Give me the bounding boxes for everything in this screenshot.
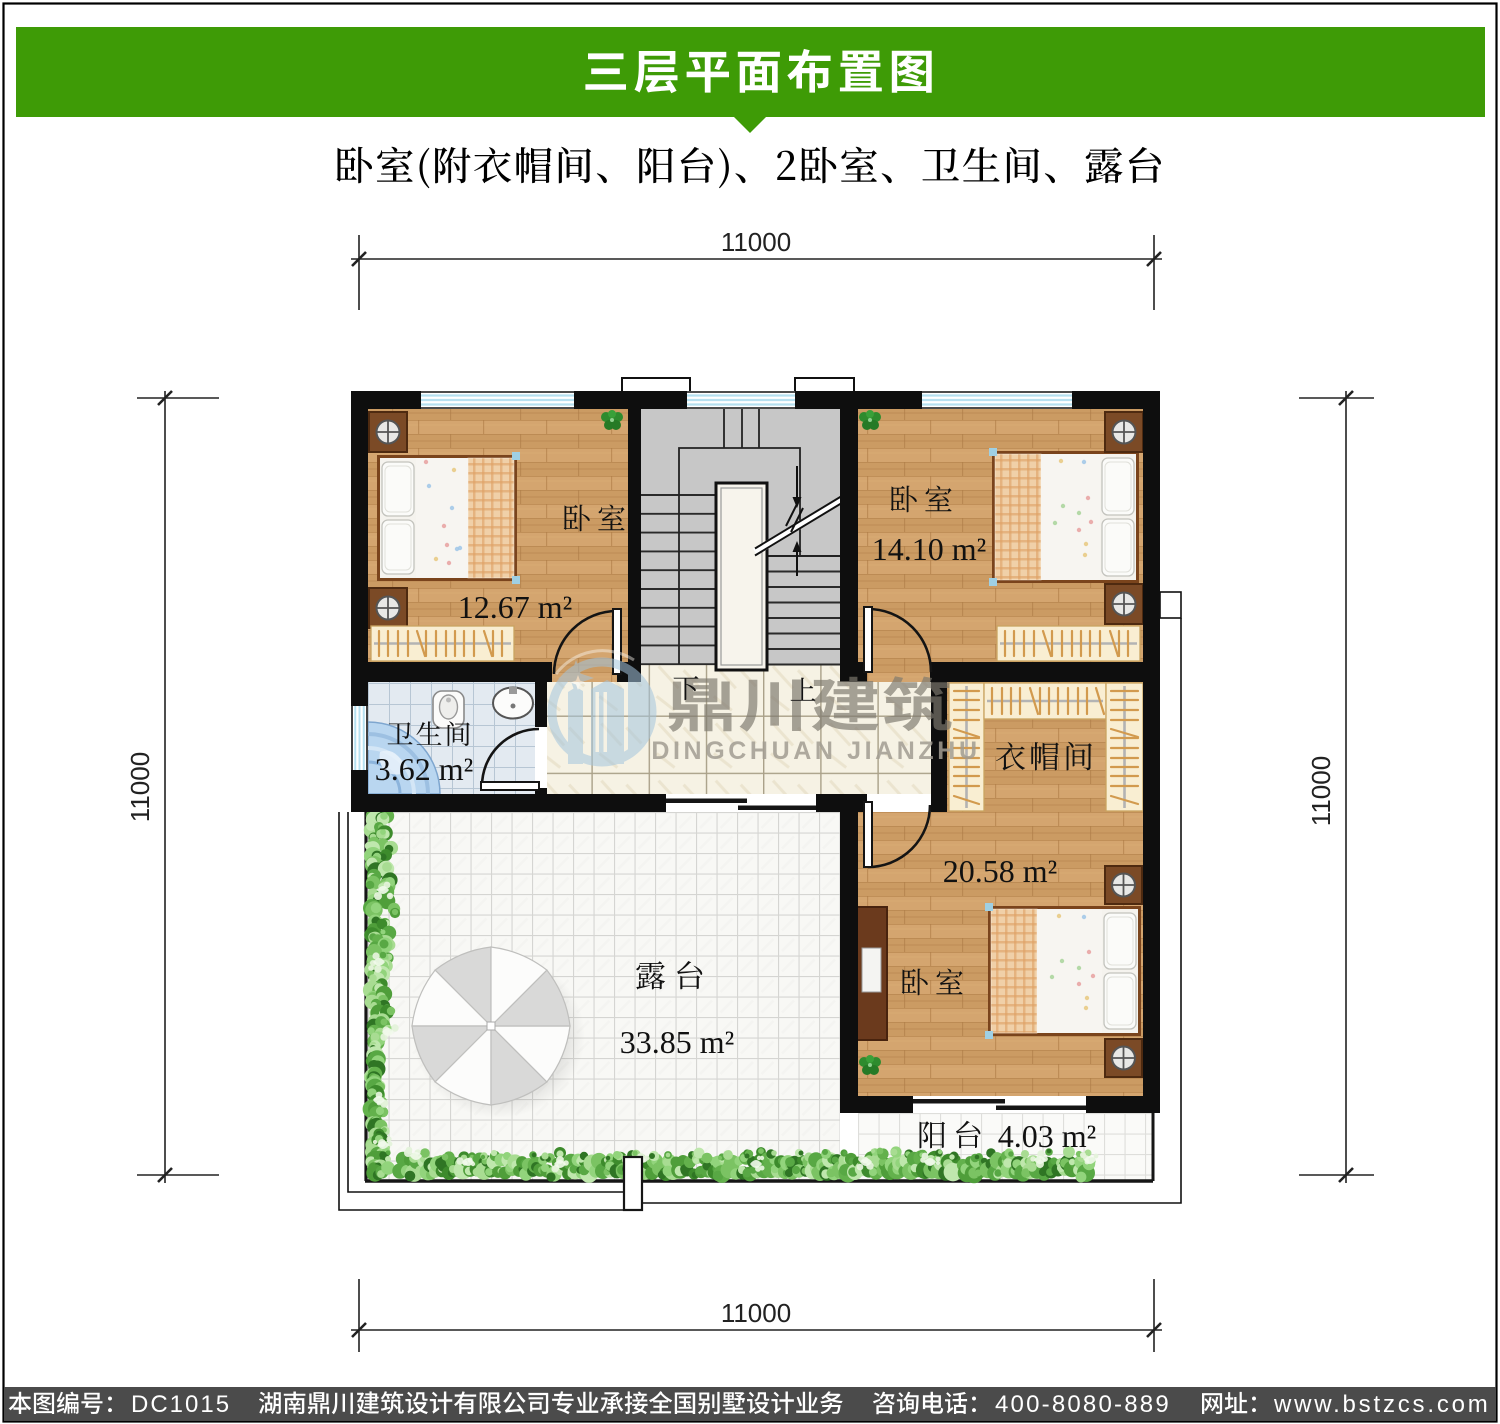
svg-text:11000: 11000 — [1306, 756, 1336, 826]
svg-text:11000: 11000 — [721, 1298, 791, 1328]
svg-text:12.67 m²: 12.67 m² — [458, 589, 572, 625]
svg-text:20.58 m²: 20.58 m² — [943, 853, 1057, 889]
svg-text:33.85 m²: 33.85 m² — [620, 1024, 734, 1060]
svg-text:14.10 m²: 14.10 m² — [872, 531, 986, 567]
svg-text:3.62 m²: 3.62 m² — [375, 751, 473, 787]
svg-text:11000: 11000 — [125, 752, 155, 822]
svg-text:400-8080-889: 400-8080-889 — [995, 1391, 1171, 1418]
svg-text:www.bstzcs.com: www.bstzcs.com — [1273, 1391, 1491, 1418]
svg-text:11000: 11000 — [721, 227, 791, 257]
svg-text:4.03 m²: 4.03 m² — [998, 1118, 1096, 1154]
svg-text:DC1015: DC1015 — [131, 1391, 231, 1418]
svg-text:DINGCHUAN JIANZHU: DINGCHUAN JIANZHU — [651, 737, 980, 765]
